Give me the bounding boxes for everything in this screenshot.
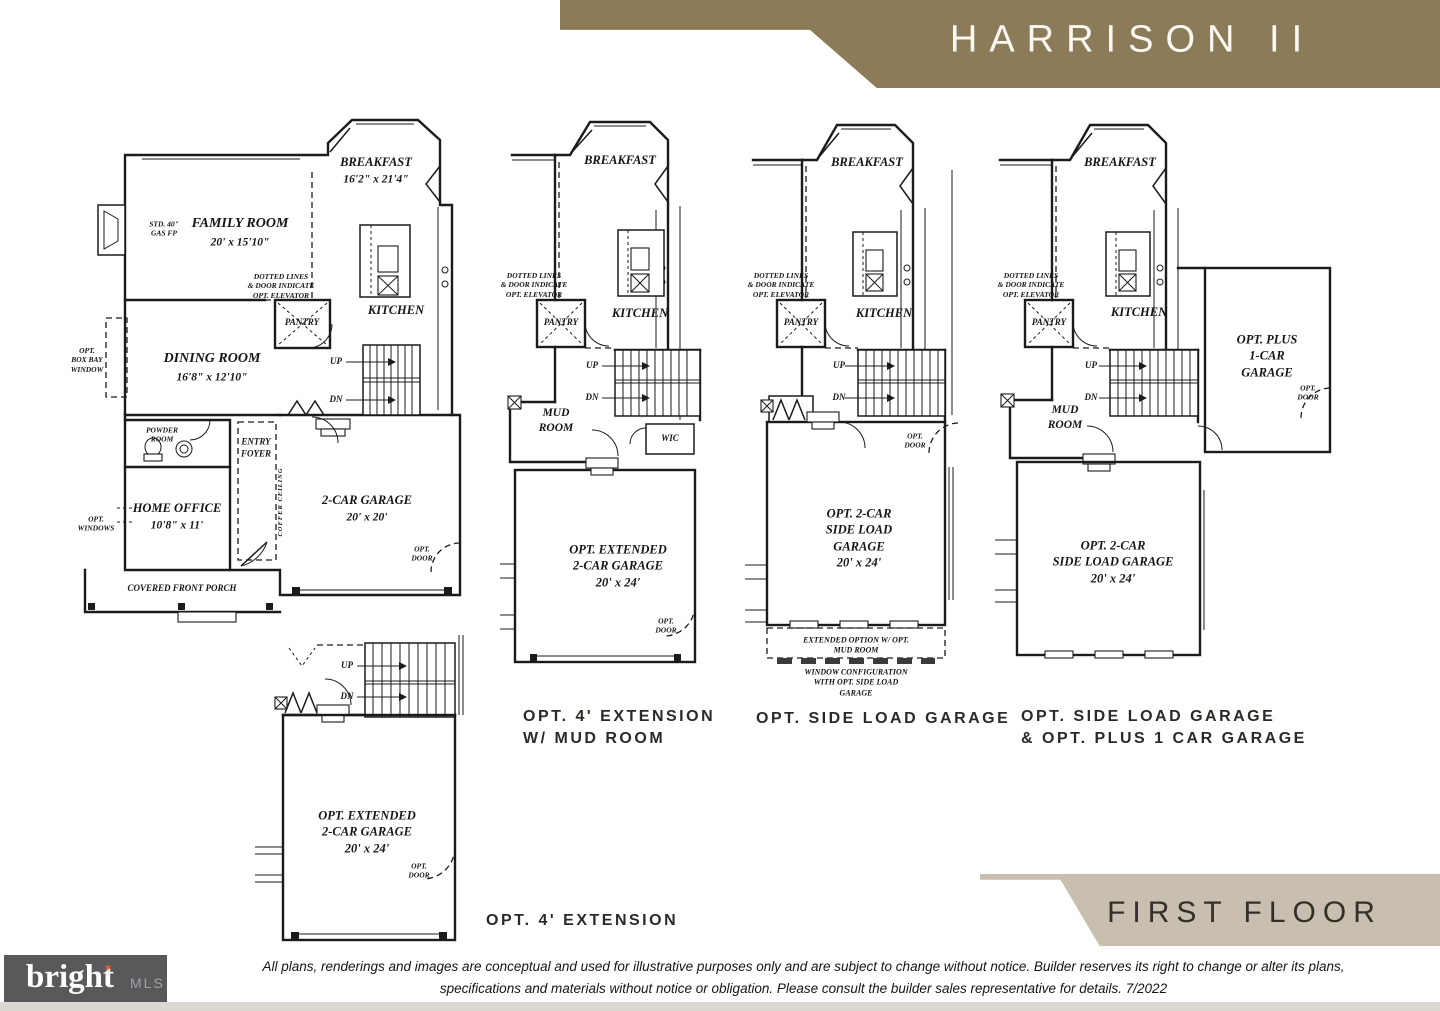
title-banner: HARRISON II [560, 0, 1440, 88]
disclaimer-line-2: specifications and materials without not… [175, 978, 1432, 1000]
stairs [346, 345, 420, 415]
stairs-dn-label: DN [1085, 392, 1098, 404]
room-label-breakfast: BREAKFAST [1084, 154, 1156, 170]
dim-label-family-room: 20' x 15'10" [211, 236, 270, 251]
bottom-strip [0, 1002, 1440, 1011]
caption-sideload: OPT. SIDE LOAD GARAGE [756, 708, 1010, 730]
floorplan-sideload-plus: BREAKFAST DOTTED LINES & DOOR INDICATE O… [995, 110, 1340, 680]
disclaimer-line-1: All plans, renderings and images are con… [175, 956, 1432, 978]
floorplan-sideload-plus-drawing [995, 110, 1340, 680]
note-opt-door: OPT. DOOR [904, 432, 925, 451]
plan-title: HARRISON II [950, 19, 1314, 62]
stairs-dn-label: DN [330, 394, 343, 406]
stairs-up-label: UP [1085, 360, 1097, 372]
room-label-kitchen: KITCHEN [612, 305, 668, 321]
room-label-pantry: PANTRY [544, 317, 578, 329]
floorplan-main: BREAKFAST 16'2" x 21'4" FAMILY ROOM 20' … [60, 110, 480, 630]
mudroom-register [1001, 394, 1014, 407]
note-opt-windows: OPT. WINDOWS [78, 515, 115, 534]
caption-sideload-plus: OPT. SIDE LOAD GARAGE & OPT. PLUS 1 CAR … [1021, 706, 1307, 751]
note-gas-fireplace: STD. 40" GAS FP [149, 220, 179, 239]
room-label-garage: 2-CAR GARAGE [322, 492, 412, 508]
disclaimer-text: All plans, renderings and images are con… [175, 956, 1432, 1000]
note-window-configuration: WINDOW CONFIGURATION WITH OPT. SIDE LOAD… [799, 667, 913, 698]
room-label-breakfast: BREAKFAST [340, 154, 412, 170]
note-opt-elevator: DOTTED LINES & DOOR INDICATE OPT. ELEVAT… [998, 271, 1065, 299]
room-label-powder-room: POWDER ROOM [146, 426, 178, 445]
stairs-dn-label: DN [341, 691, 354, 703]
brightmls-star-icon: ✶ [103, 961, 113, 975]
caption-ext-mudroom: OPT. 4' EXTENSION W/ MUD ROOM [523, 706, 715, 751]
floor-label: FIRST FLOOR [1107, 896, 1382, 930]
dim-label-garage: 20' x 20' [347, 511, 388, 526]
room-label-entry-foyer: ENTRY FOYER [241, 436, 271, 459]
room-label-home-office: HOME OFFICE [133, 500, 222, 516]
stairs-up-label: UP [330, 356, 342, 368]
room-label-kitchen: KITCHEN [1111, 304, 1167, 320]
room-label-kitchen: KITCHEN [856, 305, 912, 321]
dim-label-home-office: 10'8" x 11' [151, 519, 203, 534]
room-label-breakfast: BREAKFAST [584, 152, 656, 168]
note-opt-elevator: DOTTED LINES & DOOR INDICATE OPT. ELEVAT… [248, 272, 315, 300]
floorplan-ext-mudroom-drawing [500, 110, 720, 680]
stairs [357, 643, 455, 717]
kitchen-fixtures [618, 230, 665, 296]
fireplace [98, 205, 125, 255]
room-label-wic: WIC [661, 433, 679, 445]
stairs-up-label: UP [586, 360, 598, 372]
room-label-kitchen: KITCHEN [368, 302, 424, 318]
room-label-plus-garage: OPT. PLUS 1-CAR GARAGE [1231, 332, 1304, 381]
room-label-side-garage: OPT. 2-CAR SIDE LOAD GARAGE 20' x 24' [1053, 538, 1174, 587]
note-coffer-ceiling: COFFER CEILING [277, 467, 285, 536]
stairs-up-label: UP [341, 660, 353, 672]
covered-front-porch [85, 570, 280, 622]
brightmls-logo: bright ✶ MLS [4, 955, 167, 1003]
note-opt-door: OPT. DOOR [411, 545, 432, 564]
room-label-porch: COVERED FRONT PORCH [127, 583, 236, 595]
room-label-pantry: PANTRY [784, 317, 818, 329]
floorplan-ext-mudroom: BREAKFAST DOTTED LINES & DOOR INDICATE O… [500, 110, 720, 680]
note-opt-elevator: DOTTED LINES & DOOR INDICATE OPT. ELEVAT… [748, 271, 815, 299]
room-label-breakfast: BREAKFAST [831, 154, 903, 170]
garage-entry-stoop [312, 417, 350, 443]
room-label-ext-garage: OPT. EXTENDED 2-CAR GARAGE 20' x 24' [318, 808, 415, 857]
brightmls-logo-brand: bright [26, 959, 114, 996]
stairs-up-label: UP [833, 360, 845, 372]
dim-label-breakfast: 16'2" x 21'4" [343, 173, 408, 188]
room-label-pantry: PANTRY [1032, 317, 1066, 329]
floor-banner: FIRST FLOOR [980, 874, 1440, 946]
room-label-dining-room: DINING ROOM [164, 350, 261, 368]
room-label-mud-room: MUD ROOM [1048, 403, 1083, 433]
floorplan-sideload: BREAKFAST DOTTED LINES & DOOR INDICATE O… [745, 110, 970, 700]
mudroom-register [508, 396, 521, 409]
opt-door-arc [431, 543, 460, 572]
note-opt-door: OPT. DOOR [655, 617, 676, 636]
floorplan-sheet: BREAKFAST 16'2" x 21'4" FAMILY ROOM 20' … [0, 0, 1440, 1011]
note-opt-elevator: DOTTED LINES & DOOR INDICATE OPT. ELEVAT… [501, 271, 568, 299]
stairs-dn-label: DN [586, 392, 599, 404]
note-opt-door: OPT. DOOR [1297, 384, 1318, 403]
brightmls-logo-suffix: MLS [130, 975, 165, 991]
stairs [602, 350, 700, 416]
floorplan-sideload-drawing [745, 110, 970, 700]
note-opt-door: OPT. DOOR [408, 862, 429, 881]
room-label-family-room: FAMILY ROOM [192, 215, 289, 233]
stairs [845, 350, 945, 416]
note-box-bay-window: OPT. BOX BAY WINDOW [71, 346, 104, 374]
room-label-pantry: PANTRY [285, 317, 319, 329]
closet-bench [761, 396, 813, 422]
dim-label-dining-room: 16'8" x 12'10" [177, 371, 248, 386]
room-label-mud-room: MUD ROOM [539, 406, 574, 436]
room-label-ext-garage: OPT. EXTENDED 2-CAR GARAGE 20' x 24' [569, 542, 666, 591]
stairs [1099, 350, 1198, 416]
floorplan-ext-detail: OPT. EXTENDED 2-CAR GARAGE 20' x 24' OPT… [255, 635, 475, 950]
room-label-side-garage: OPT. 2-CAR SIDE LOAD GARAGE 20' x 24' [804, 506, 915, 571]
note-extended-option: EXTENDED OPTION W/ OPT. MUD ROOM [799, 636, 913, 657]
caption-ext: OPT. 4' EXTENSION [486, 910, 678, 932]
floorplan-ext-detail-drawing [255, 635, 475, 950]
stairs-dn-label: DN [833, 392, 846, 404]
